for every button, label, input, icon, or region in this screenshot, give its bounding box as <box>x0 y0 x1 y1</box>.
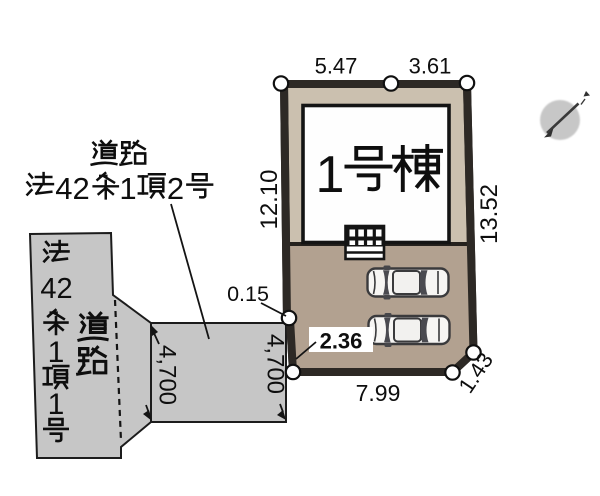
svg-text:1: 1 <box>48 336 65 369</box>
svg-text:2.36: 2.36 <box>320 329 363 354</box>
svg-text:13.52: 13.52 <box>476 184 503 244</box>
svg-text:1: 1 <box>316 146 345 204</box>
svg-text:42: 42 <box>40 273 72 305</box>
svg-text:1: 1 <box>119 171 136 206</box>
svg-text:12.10: 12.10 <box>256 169 283 229</box>
svg-text:1: 1 <box>48 388 65 421</box>
svg-text:0.15: 0.15 <box>227 282 269 306</box>
svg-text:4,700: 4,700 <box>154 345 181 405</box>
svg-text:4,700: 4,700 <box>262 334 289 394</box>
svg-text:5.47: 5.47 <box>315 54 358 79</box>
svg-text:2: 2 <box>167 171 184 206</box>
svg-text:42: 42 <box>55 171 89 206</box>
svg-text:7.99: 7.99 <box>356 380 401 406</box>
svg-text:3.61: 3.61 <box>409 54 452 79</box>
